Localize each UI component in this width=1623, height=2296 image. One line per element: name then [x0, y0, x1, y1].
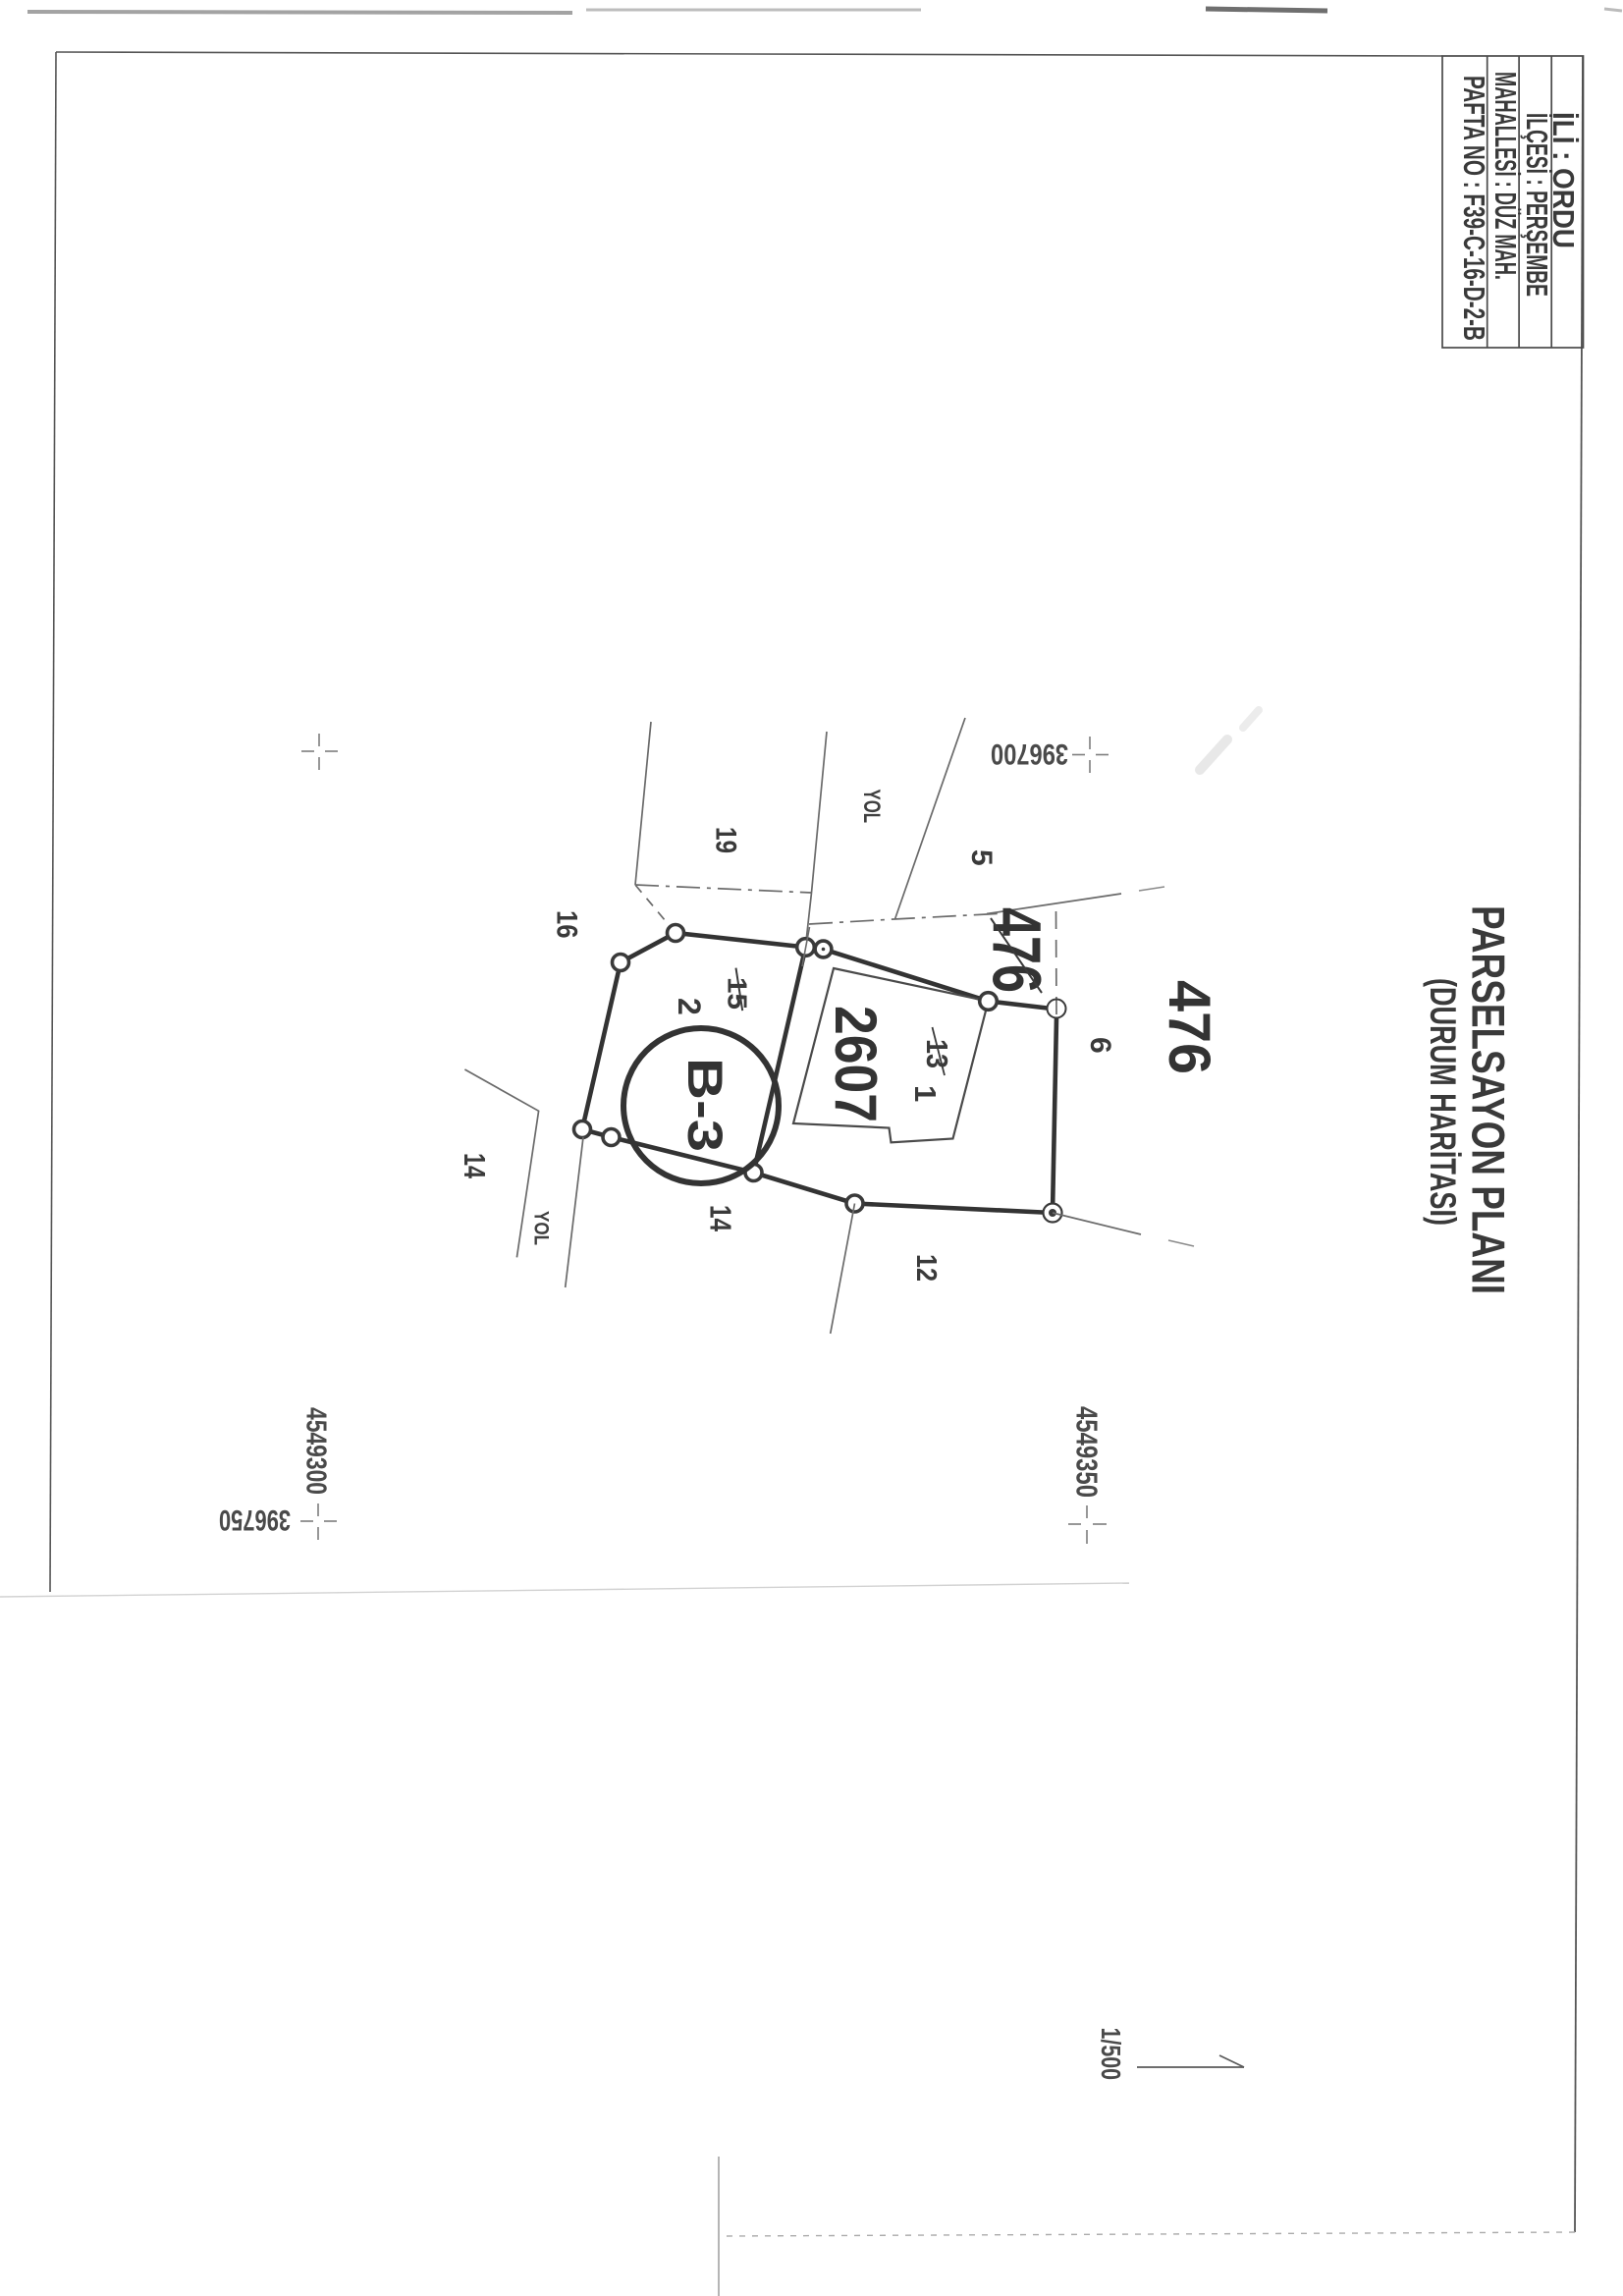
svg-text:YOL: YOL: [858, 790, 885, 824]
svg-text:396700: 396700: [991, 738, 1068, 770]
svg-text:PARSELSAYON PLANI: PARSELSAYON PLANI: [1463, 905, 1515, 1294]
svg-text:476: 476: [979, 907, 1055, 993]
svg-text:B-3: B-3: [677, 1058, 732, 1152]
svg-text:1/500: 1/500: [1096, 2028, 1126, 2081]
svg-text:396750: 396750: [219, 1503, 291, 1536]
svg-text:4549350: 4549350: [1070, 1406, 1105, 1498]
svg-text:MAHALLESİ : DÜZ MAH.: MAHALLESİ : DÜZ MAH.: [1488, 72, 1523, 280]
svg-text:476: 476: [1157, 980, 1222, 1074]
svg-text:12: 12: [910, 1254, 942, 1282]
svg-text:(DURUM HARİTASI): (DURUM HARİTASI): [1423, 978, 1463, 1226]
svg-text:14: 14: [458, 1153, 492, 1179]
svg-text:6: 6: [1084, 1037, 1116, 1054]
svg-text:2: 2: [672, 998, 707, 1015]
svg-text:İLÇESİ : PERŞEMBE: İLÇESİ : PERŞEMBE: [1520, 113, 1554, 297]
svg-text:2607: 2607: [823, 1006, 889, 1122]
svg-text:14: 14: [704, 1205, 738, 1232]
svg-text:PAFTA NO : F39-C-16-D-2-B: PAFTA NO : F39-C-16-D-2-B: [1457, 76, 1491, 341]
svg-text:YOL: YOL: [530, 1211, 553, 1245]
svg-text:1: 1: [908, 1085, 943, 1102]
svg-text:19: 19: [710, 827, 742, 853]
svg-text:4549300: 4549300: [300, 1407, 332, 1495]
svg-text:5: 5: [965, 849, 998, 866]
svg-text:16: 16: [551, 910, 583, 939]
